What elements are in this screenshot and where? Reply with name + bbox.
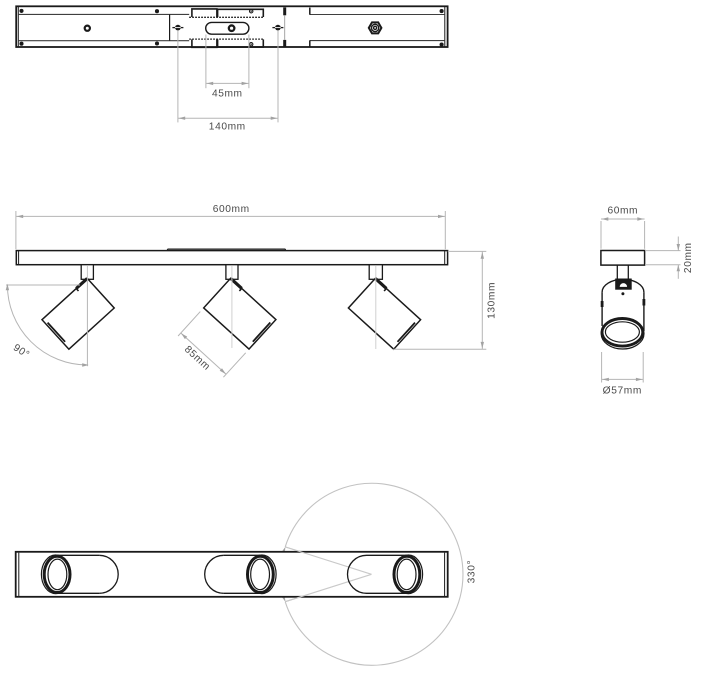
svg-text:Ø57mm: Ø57mm <box>603 386 642 397</box>
svg-text:60mm: 60mm <box>607 205 638 216</box>
svg-text:20mm: 20mm <box>683 242 694 273</box>
svg-text:330°: 330° <box>466 560 477 583</box>
svg-text:140mm: 140mm <box>209 122 246 133</box>
svg-text:130mm: 130mm <box>486 282 497 319</box>
svg-text:600mm: 600mm <box>213 204 250 215</box>
svg-text:45mm: 45mm <box>212 88 243 99</box>
